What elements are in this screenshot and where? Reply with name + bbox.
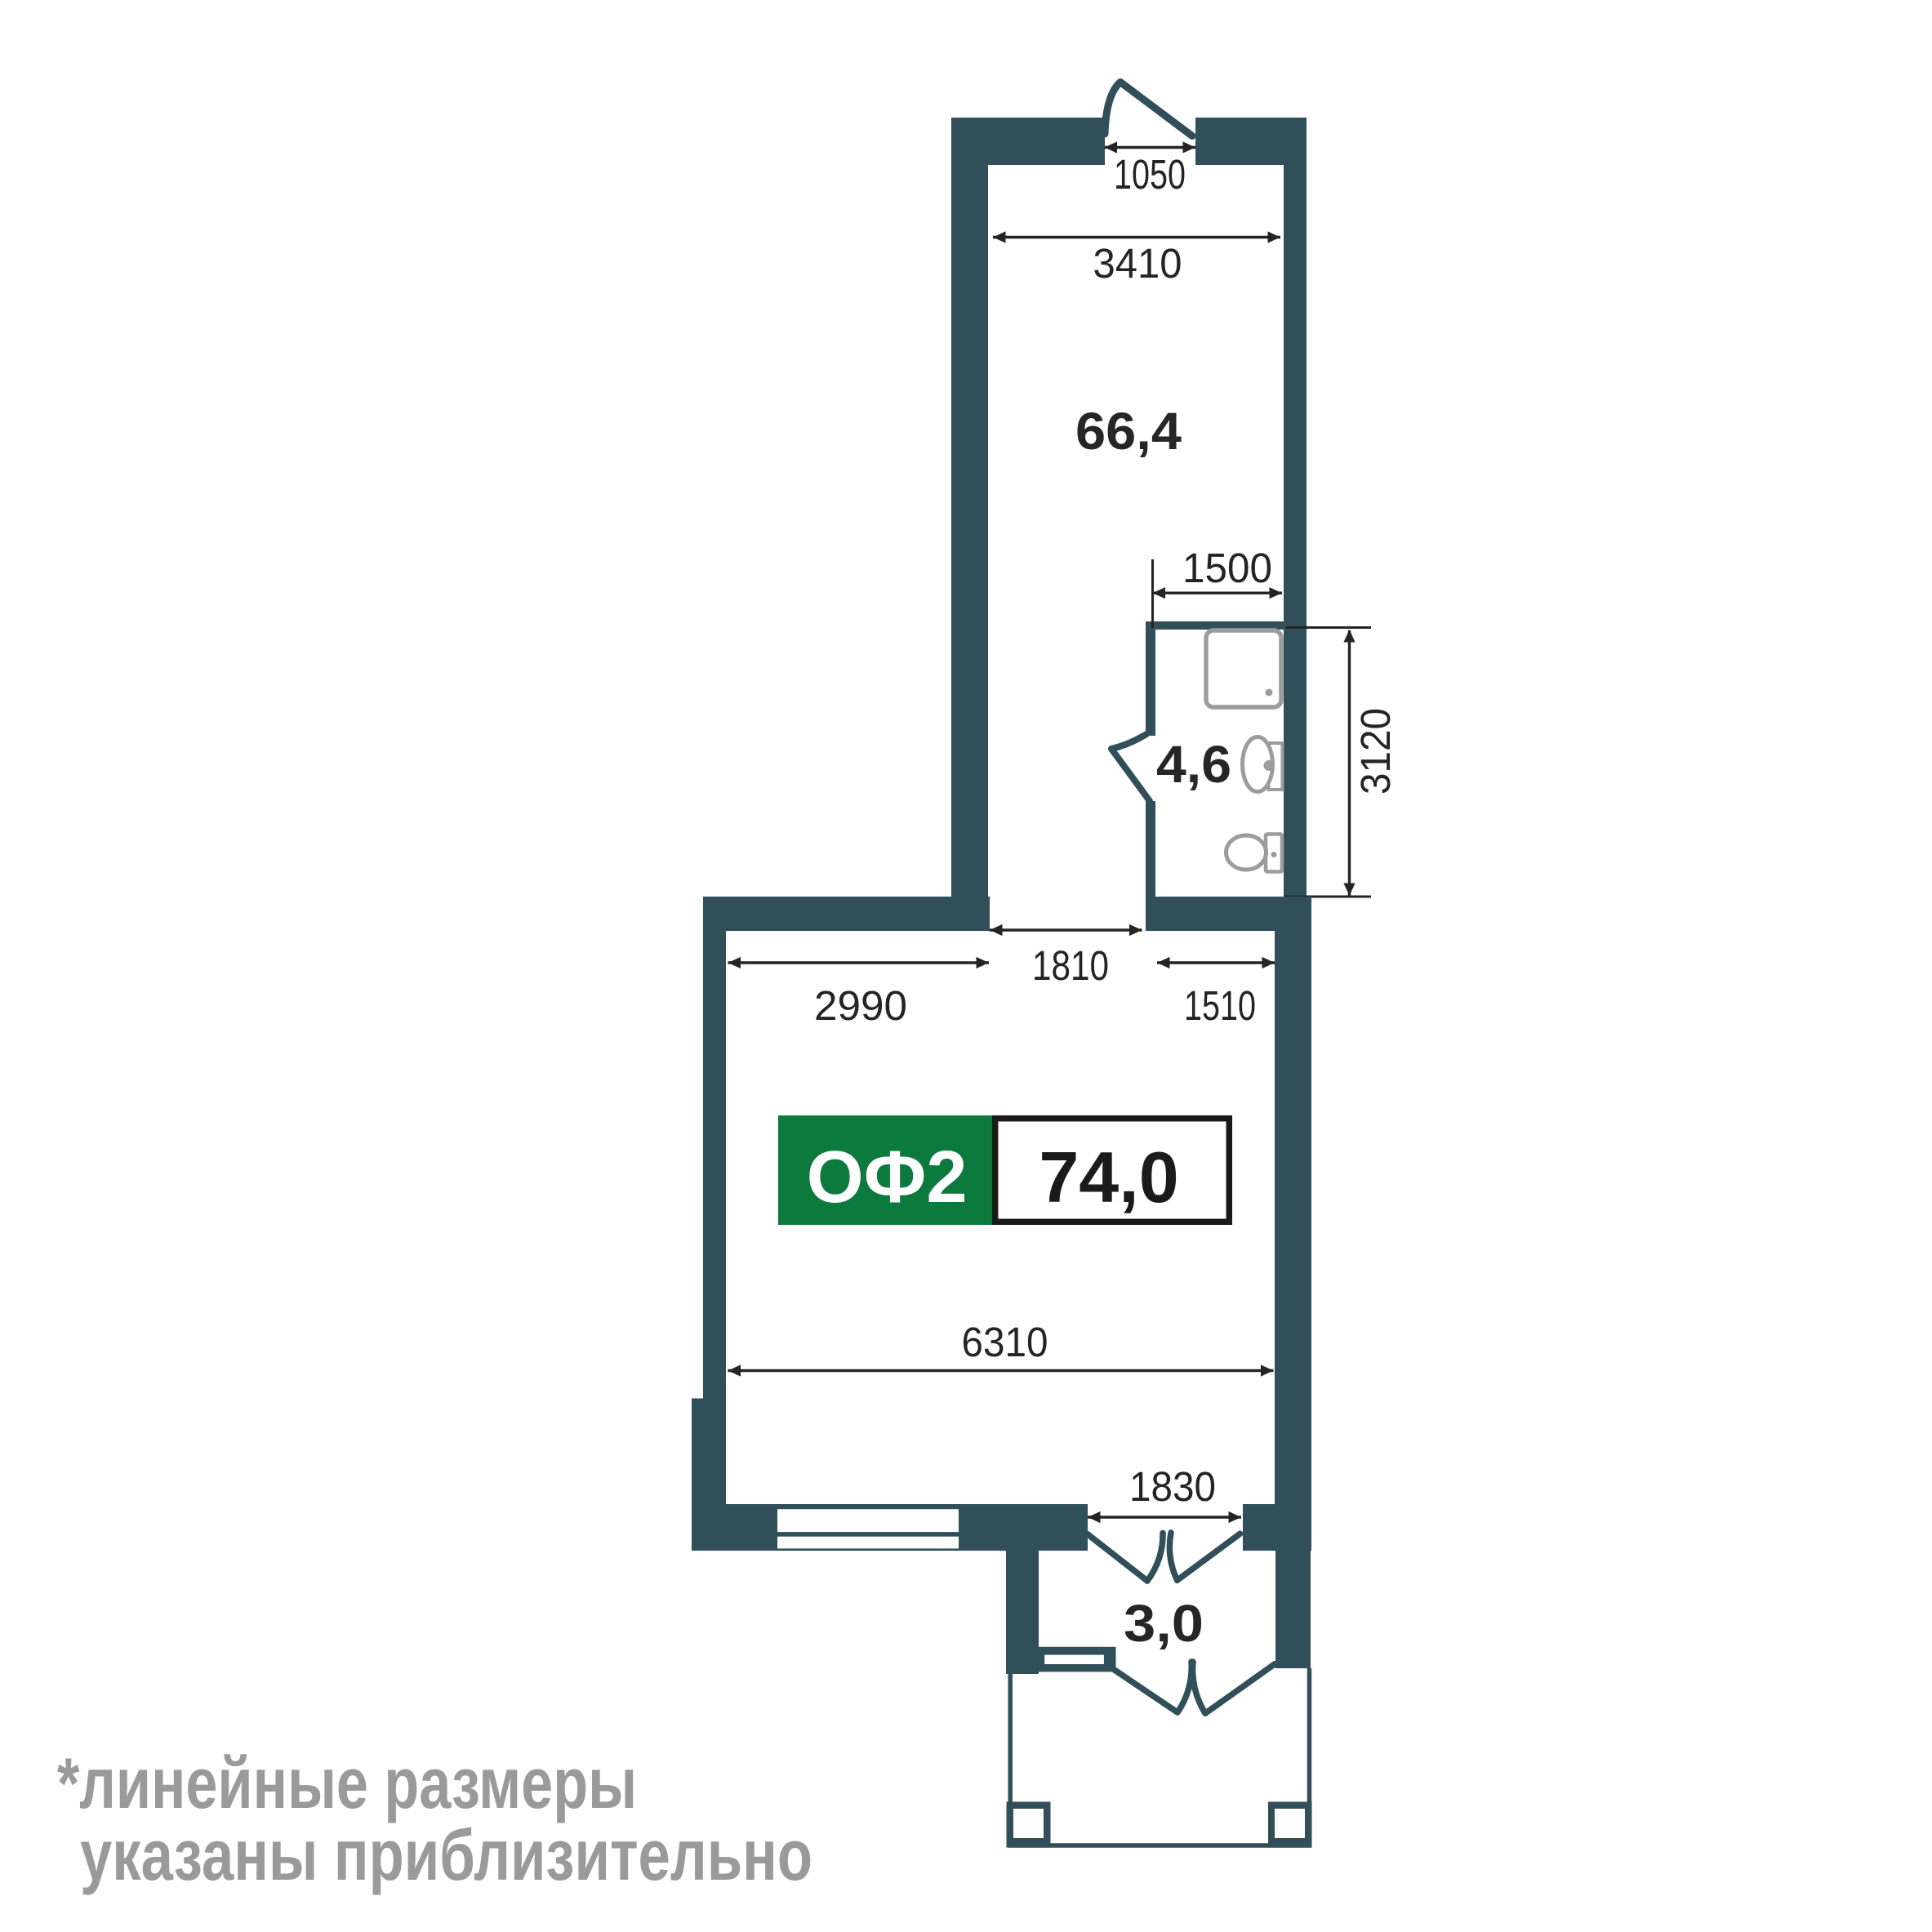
svg-text:ОФ2: ОФ2	[807, 1137, 968, 1218]
svg-text:1050: 1050	[1114, 151, 1186, 198]
svg-text:3120: 3120	[1352, 708, 1399, 795]
svg-text:1830: 1830	[1129, 1463, 1216, 1510]
svg-text:3410: 3410	[1093, 240, 1182, 287]
svg-text:*линейные размеры: *линейные размеры	[57, 1743, 637, 1823]
svg-text:1510: 1510	[1184, 982, 1256, 1029]
svg-text:4,6: 4,6	[1156, 735, 1231, 794]
svg-text:74,0: 74,0	[1039, 1137, 1178, 1218]
svg-text:3,0: 3,0	[1124, 1594, 1204, 1653]
svg-text:2990: 2990	[814, 982, 907, 1029]
svg-text:66,4: 66,4	[1075, 402, 1182, 461]
svg-text:6310: 6310	[962, 1319, 1048, 1365]
svg-text:указаны приблизительно: указаны приблизительно	[80, 1814, 812, 1895]
svg-text:1810: 1810	[1032, 942, 1109, 989]
svg-text:1500: 1500	[1182, 545, 1272, 591]
